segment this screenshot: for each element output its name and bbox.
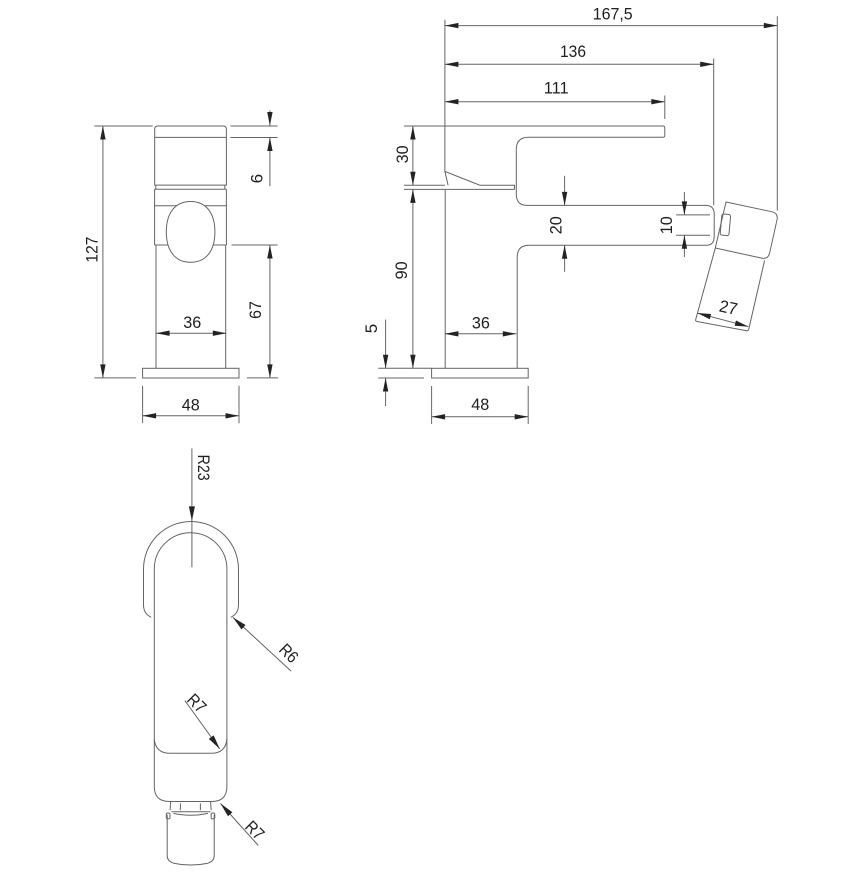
svg-text:R7: R7 xyxy=(183,690,210,717)
svg-text:48: 48 xyxy=(182,395,200,414)
svg-text:127: 127 xyxy=(82,237,101,263)
svg-text:R23: R23 xyxy=(194,455,213,481)
svg-text:6: 6 xyxy=(248,174,267,183)
svg-text:67: 67 xyxy=(246,301,265,319)
svg-text:90: 90 xyxy=(392,261,411,279)
svg-text:36: 36 xyxy=(472,313,490,332)
svg-text:30: 30 xyxy=(393,145,412,163)
svg-text:36: 36 xyxy=(183,313,201,332)
svg-text:R6: R6 xyxy=(275,640,302,667)
svg-text:48: 48 xyxy=(471,395,489,414)
svg-text:136: 136 xyxy=(560,42,586,61)
svg-text:20: 20 xyxy=(547,216,566,234)
svg-text:5: 5 xyxy=(362,324,381,333)
svg-text:27: 27 xyxy=(718,297,740,319)
svg-text:10: 10 xyxy=(657,216,676,234)
svg-text:111: 111 xyxy=(544,79,569,98)
svg-text:167,5: 167,5 xyxy=(593,5,633,24)
svg-text:R7: R7 xyxy=(241,817,268,844)
